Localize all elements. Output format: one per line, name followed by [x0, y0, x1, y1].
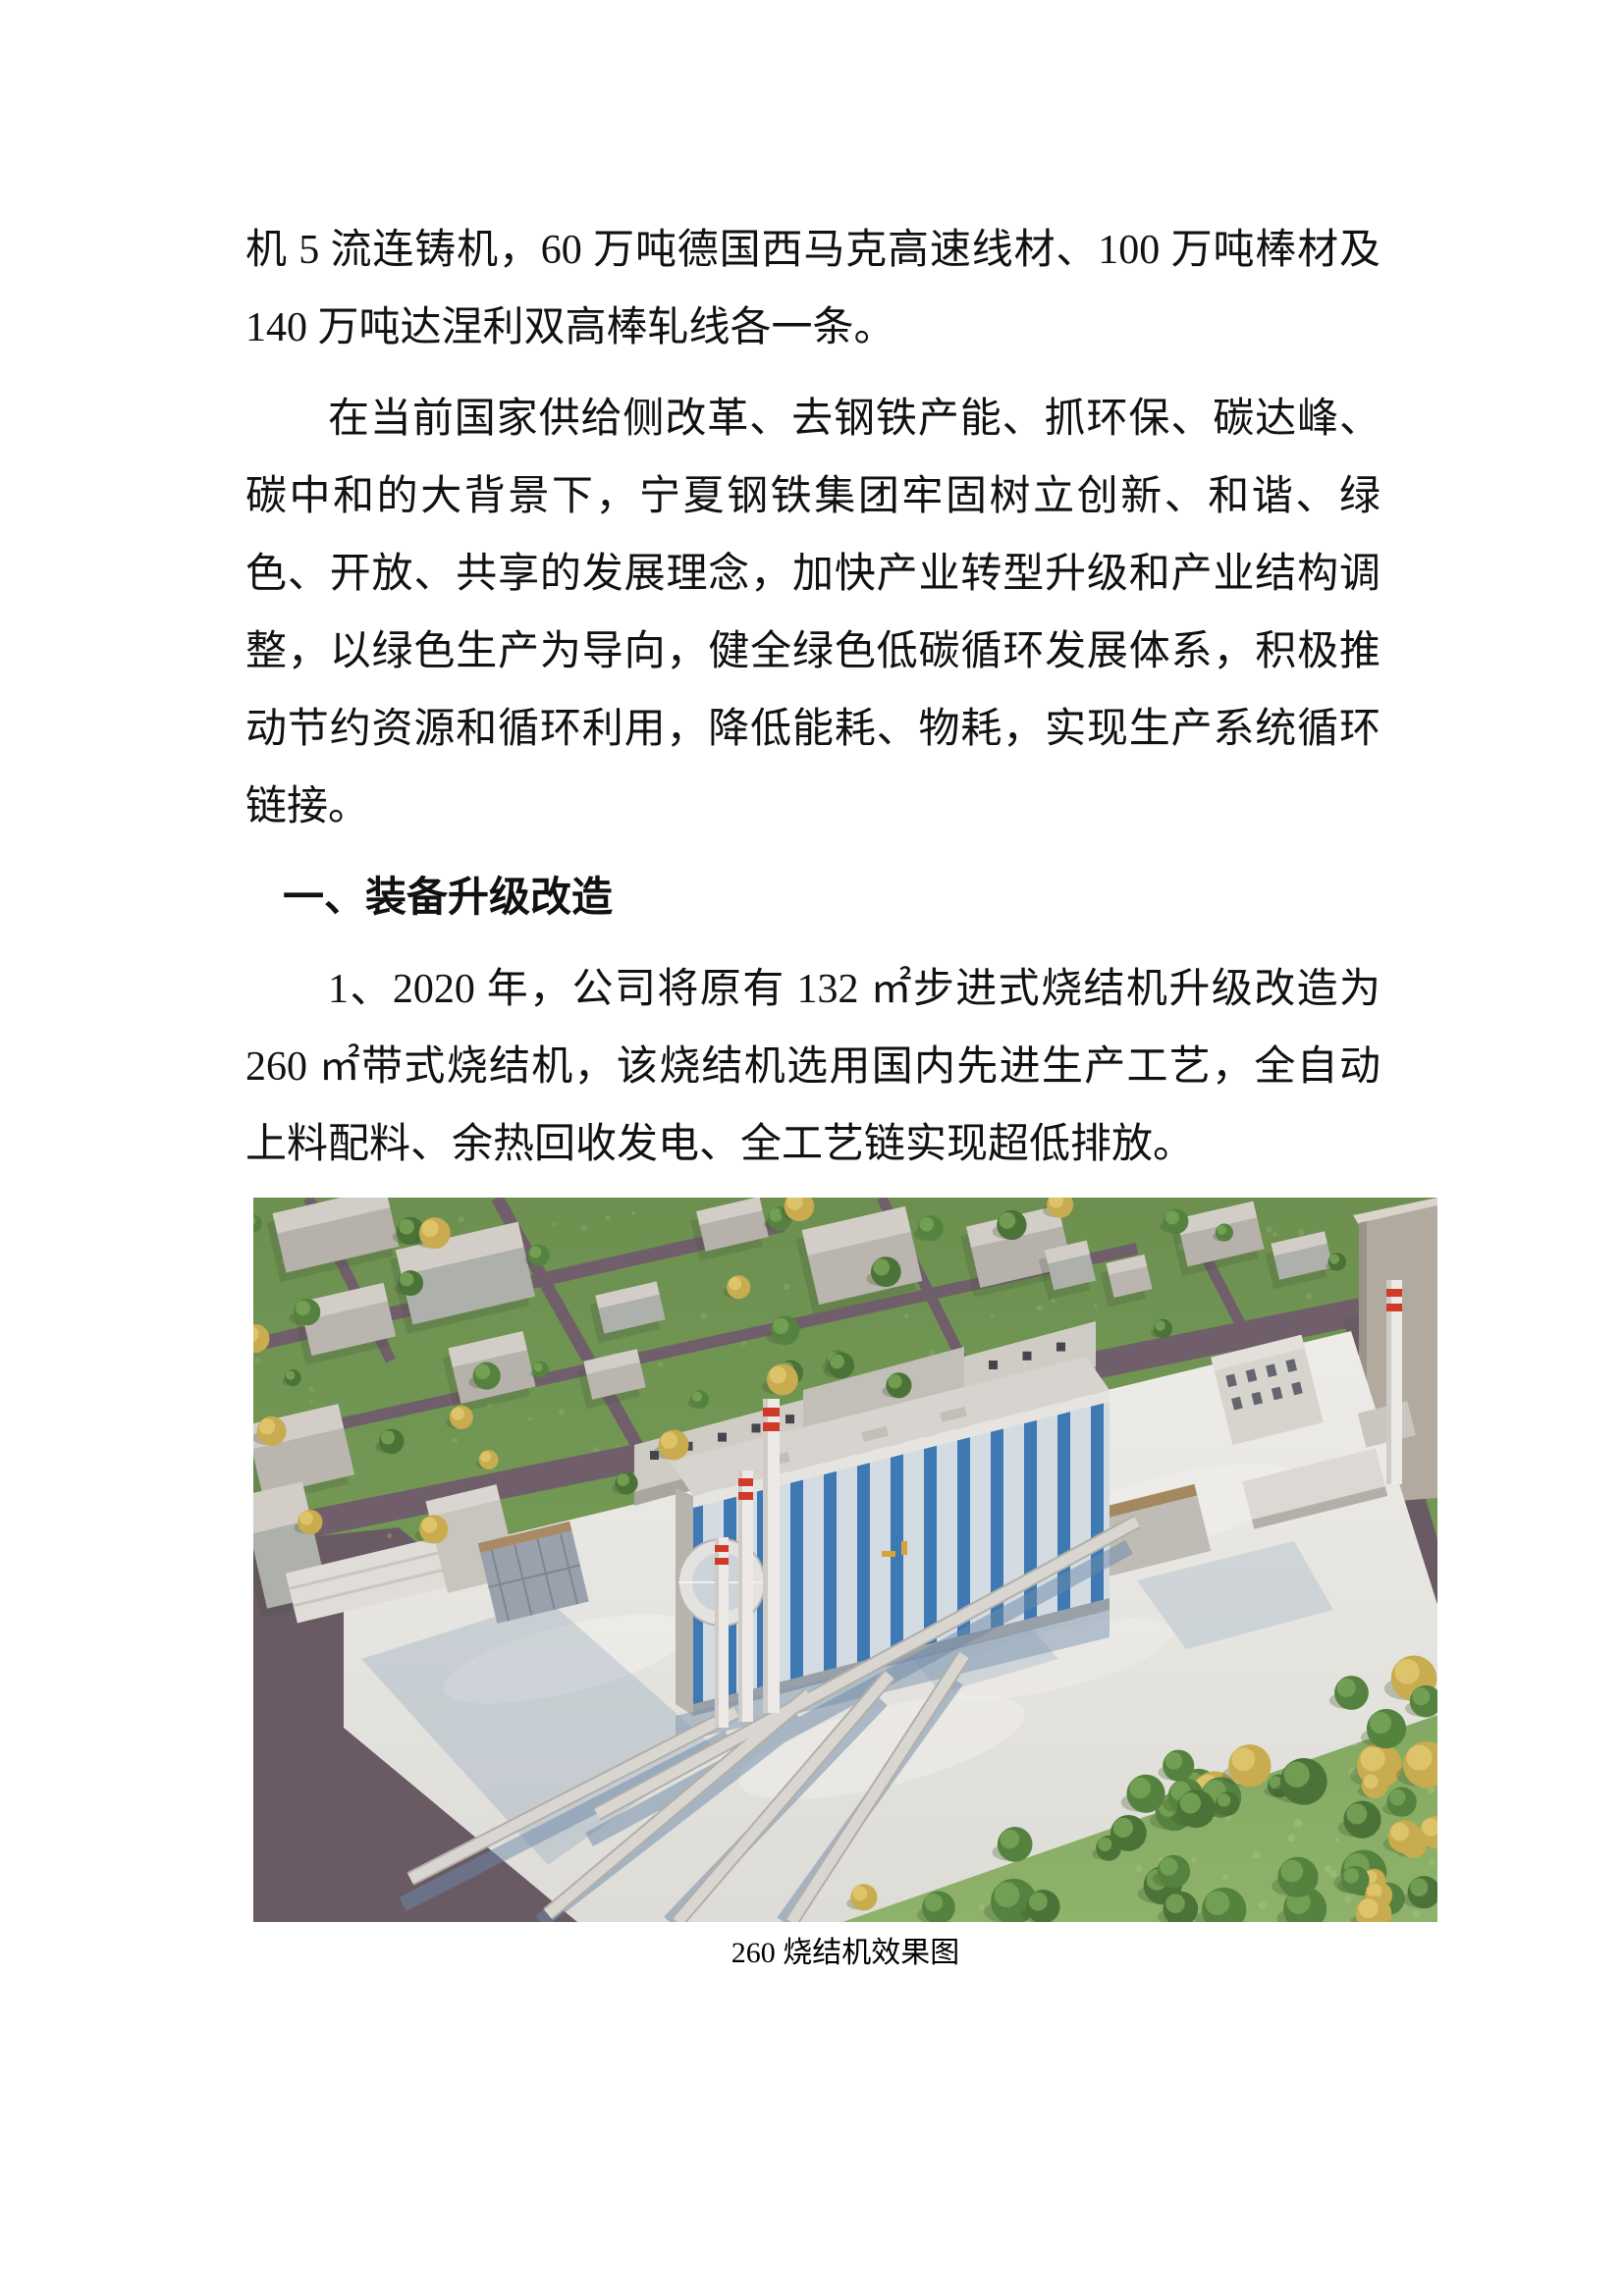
chimney-right [1386, 1280, 1402, 1484]
paragraph-policy-background: 在当前国家供给侧改革、去钢铁产能、抓环保、碳达峰、碳中和的大背景下，宁夏钢铁集团… [245, 381, 1380, 846]
document-content: 机 5 流连铸机，60 万吨德国西马克高速线材、100 万吨棒材及 140 万吨… [245, 212, 1380, 1975]
facility-rendering-figure: 260 烧结机效果图 [253, 1198, 1437, 1975]
document-page: 机 5 流连铸机，60 万吨德国西马克高速线材、100 万吨棒材及 140 万吨… [0, 0, 1624, 2296]
chimney-mid [738, 1470, 753, 1722]
chimney-short [715, 1537, 729, 1728]
paragraph-intro-continued: 机 5 流连铸机，60 万吨德国西马克高速线材、100 万吨棒材及 140 万吨… [245, 212, 1380, 367]
image-caption: 260 烧结机效果图 [253, 1932, 1437, 1975]
chimney-tall [763, 1399, 780, 1713]
paragraph-sinter-upgrade: 1、2020 年，公司将原有 132 ㎡步进式烧结机升级改造为 260 ㎡带式烧… [245, 951, 1380, 1184]
facility-rendering-image [253, 1198, 1437, 1922]
section-heading-1: 一、装备升级改造 [245, 860, 1380, 937]
